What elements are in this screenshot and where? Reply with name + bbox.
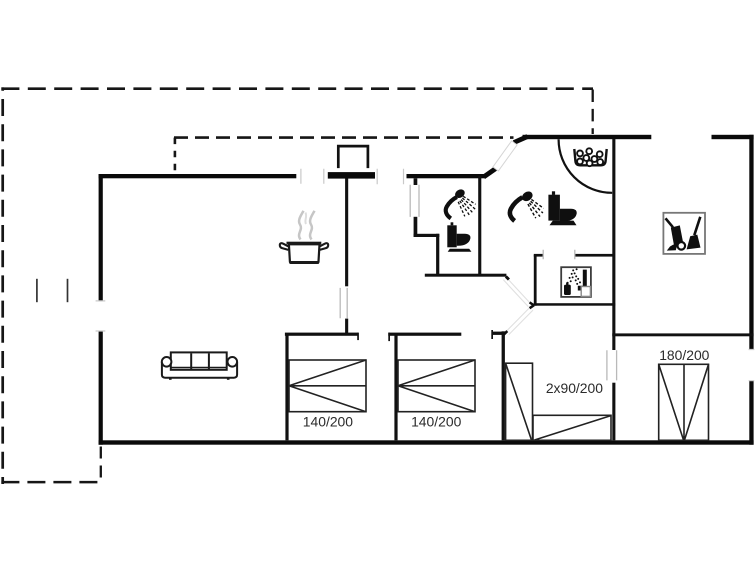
svg-text:140/200: 140/200	[411, 414, 461, 430]
svg-text:140/200: 140/200	[303, 414, 353, 430]
svg-text:2x90/200: 2x90/200	[546, 380, 603, 396]
svg-text:180/200: 180/200	[659, 347, 709, 363]
